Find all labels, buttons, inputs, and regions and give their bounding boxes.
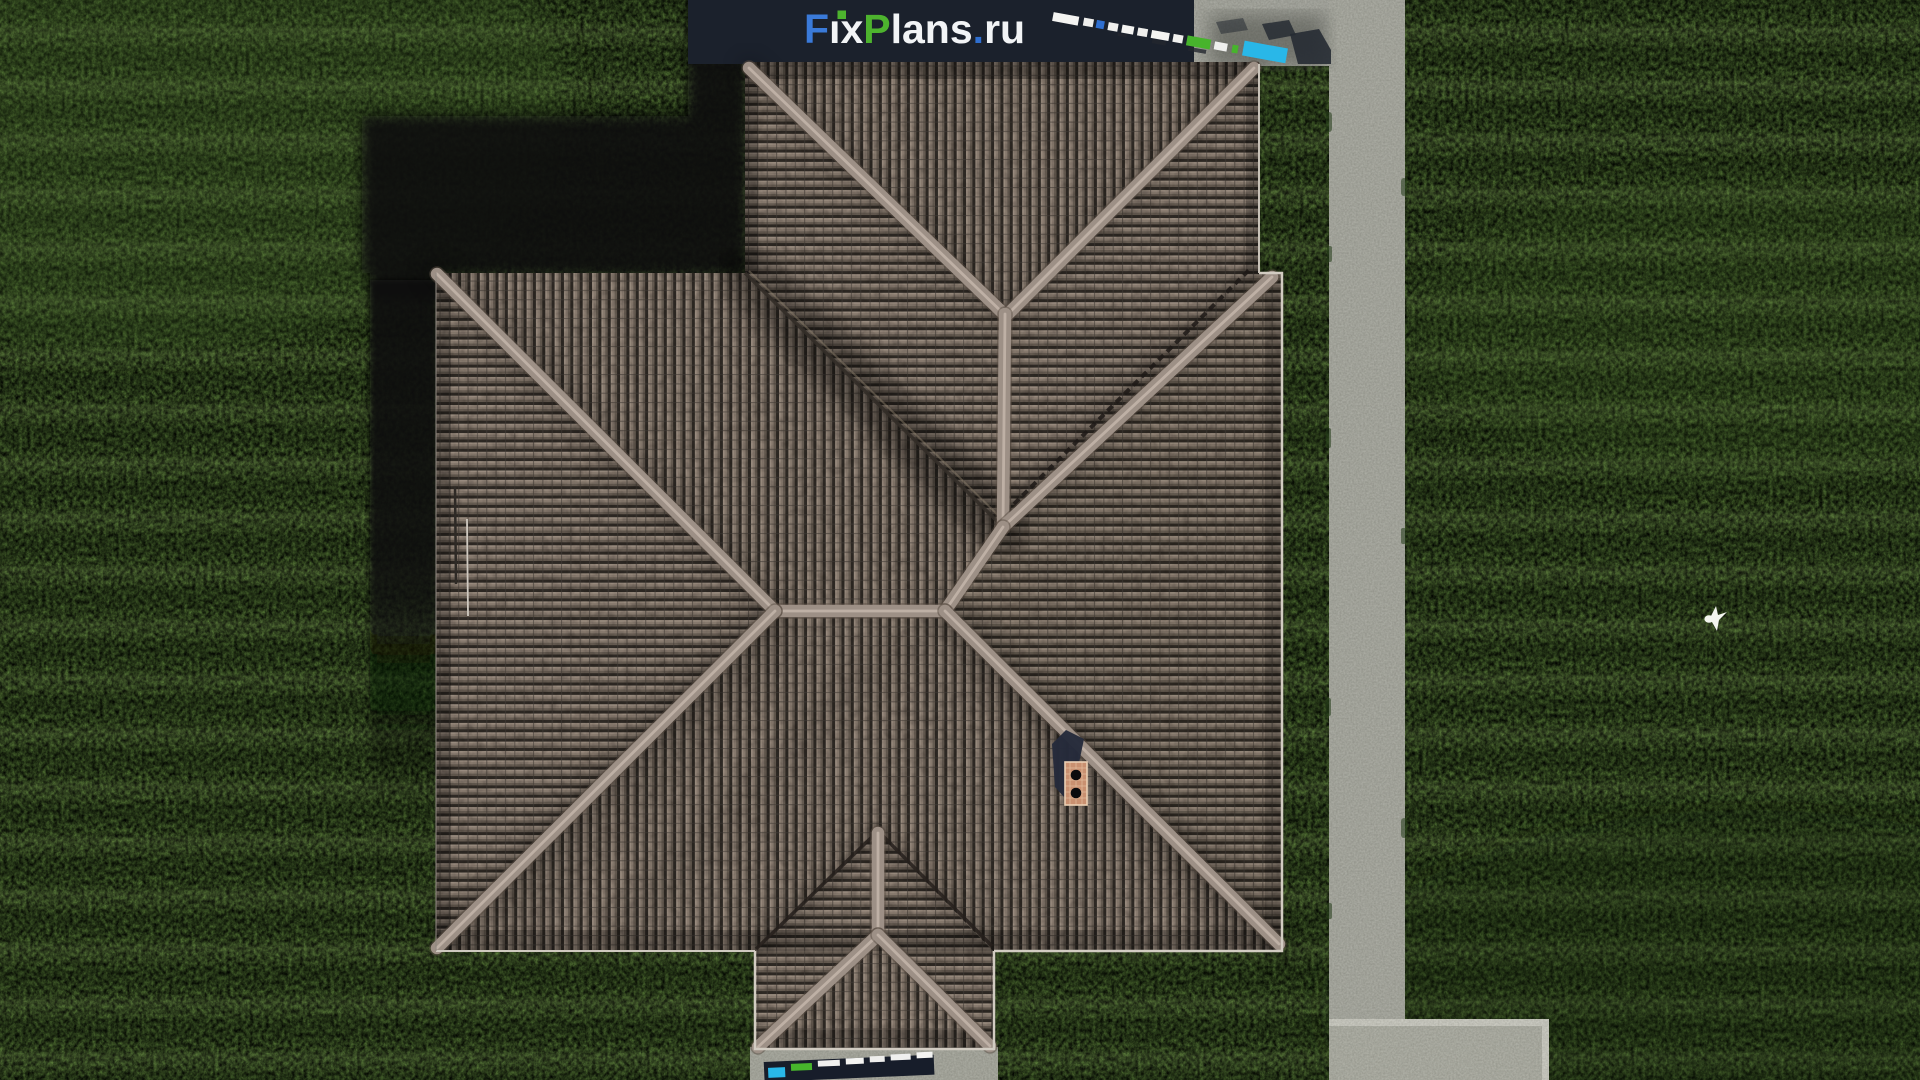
svg-text:FıxPlans.ru: FıxPlans.ru <box>804 6 1025 52</box>
